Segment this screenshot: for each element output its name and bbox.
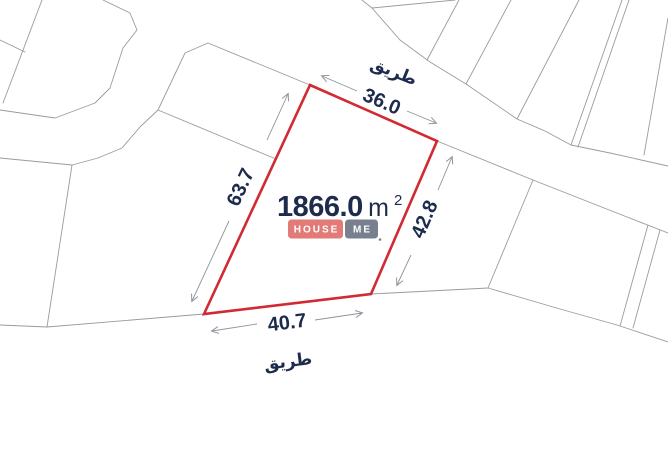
- parcel-line: [427, 0, 459, 60]
- parcel-line: [466, 0, 511, 84]
- parcel-line: [488, 180, 533, 288]
- parcel-line: [47, 165, 72, 327]
- parcel-line: [362, 0, 372, 8]
- badge-right-text: ME: [353, 225, 372, 236]
- dim-arrow-right-lower: [397, 255, 411, 285]
- road-edge-left: [0, 43, 208, 165]
- parcel-line: [3, 0, 42, 103]
- road-edge-top: [208, 43, 310, 85]
- dimension-left: 63.7: [223, 165, 259, 210]
- brand-badge: HOUSE ME: [288, 220, 381, 241]
- parcel-line: [633, 230, 660, 328]
- parcel-line: [0, 40, 25, 52]
- parcel-line: [578, 0, 629, 147]
- dim-arrow-left-upper: [267, 94, 288, 140]
- area-unit-superscript: 2: [394, 192, 402, 209]
- road-edge-bottom: [0, 314, 204, 327]
- plot-map-canvas: 36.0 63.7 42.8 40.7 طريق طريق 1866.0 m 2…: [0, 0, 668, 452]
- road-edge-top: [437, 141, 668, 233]
- badge-left-text: HOUSE: [294, 225, 340, 236]
- dim-arrow-top-right: [407, 111, 436, 123]
- parcel-line: [517, 0, 579, 119]
- road-label-top: طريق: [368, 54, 420, 91]
- parcel-line: [158, 110, 276, 159]
- dim-arrow-top-left: [322, 76, 357, 91]
- parcel-line: [0, 0, 137, 118]
- dimension-right: 42.8: [407, 197, 443, 241]
- dim-arrow-right-upper: [438, 157, 452, 190]
- parcel-line: [644, 18, 668, 155]
- site-plan-svg: 36.0 63.7 42.8 40.7 طريق طريق 1866.0 m 2…: [0, 0, 668, 452]
- dimension-bottom: 40.7: [266, 310, 307, 337]
- dim-arrow-bottom-left: [212, 324, 257, 331]
- area-unit: m: [368, 194, 389, 222]
- badge-trademark-dot: [379, 238, 382, 241]
- parcel-line: [571, 0, 622, 145]
- dim-arrow-bottom-right: [315, 313, 362, 320]
- area-value: 1866.0: [277, 191, 363, 223]
- road-label-bottom: طريق: [263, 349, 313, 375]
- plot-area-label: 1866.0 m 2: [277, 191, 402, 223]
- parcel-line: [372, 0, 455, 8]
- parcel-line: [620, 225, 648, 326]
